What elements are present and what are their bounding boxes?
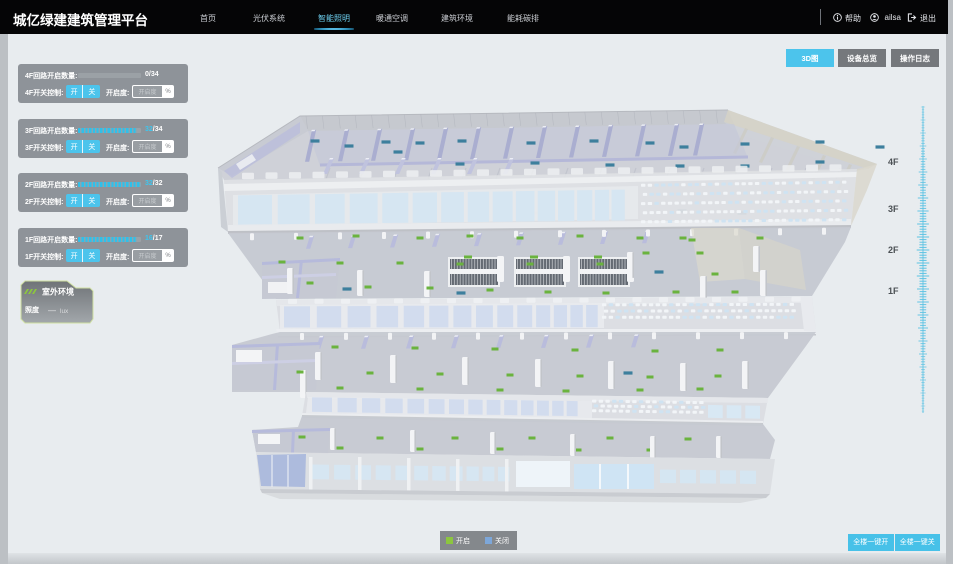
svg-text:3F: 3F xyxy=(888,204,899,214)
svg-text:4F: 4F xyxy=(888,157,899,167)
svg-text:1F: 1F xyxy=(888,286,899,296)
svg-text:2F: 2F xyxy=(888,245,899,255)
